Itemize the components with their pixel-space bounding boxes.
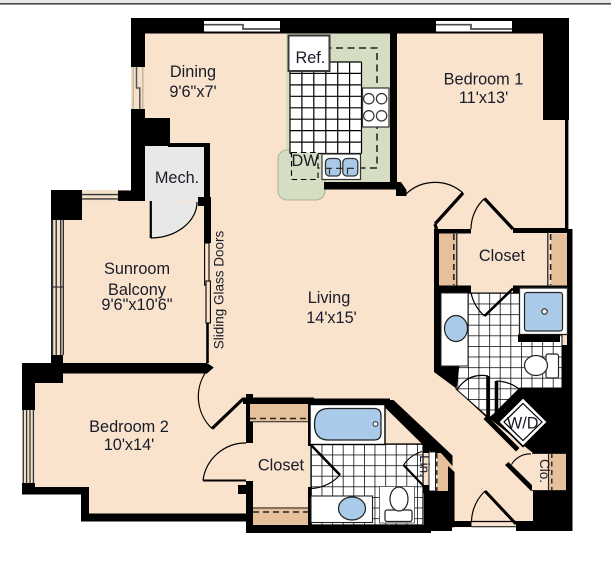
svg-text:Dining: Dining	[170, 63, 216, 81]
svg-text:DW: DW	[291, 152, 319, 170]
svg-text:Bedroom 2: Bedroom 2	[89, 418, 169, 436]
svg-text:Sunroom: Sunroom	[104, 260, 170, 278]
svg-text:Mech.: Mech.	[155, 169, 199, 187]
svg-text:W/D: W/D	[507, 414, 539, 432]
svg-text:Sliding Glass Doors: Sliding Glass Doors	[212, 230, 227, 349]
svg-text:Lin.: Lin.	[417, 455, 432, 477]
svg-text:Closet: Closet	[258, 457, 305, 475]
svg-text:Living: Living	[308, 289, 351, 307]
svg-text:9'6"x7': 9'6"x7'	[169, 83, 216, 101]
svg-text:14'x15': 14'x15'	[306, 309, 357, 327]
svg-text:11'x13': 11'x13'	[459, 89, 508, 107]
svg-text:9'6"x10'6": 9'6"x10'6"	[101, 296, 172, 314]
svg-text:Bedroom 1: Bedroom 1	[444, 70, 524, 88]
svg-text:Ref.: Ref.	[295, 49, 325, 67]
svg-text:Clo.: Clo.	[537, 459, 552, 483]
svg-text:Closet: Closet	[479, 247, 526, 265]
svg-text:10'x14': 10'x14'	[104, 436, 155, 454]
